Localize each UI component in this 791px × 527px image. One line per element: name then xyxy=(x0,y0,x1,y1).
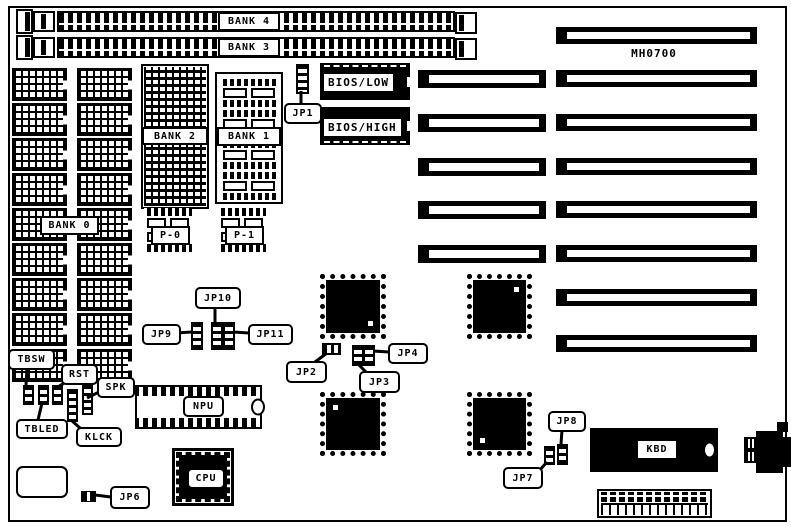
crystal-oscillator xyxy=(16,466,68,498)
kbd-label: KBD xyxy=(638,441,676,458)
jp3-jumper xyxy=(363,345,375,366)
p0-label: P-0 xyxy=(151,226,190,245)
bank1-text: BANK 1 xyxy=(228,131,270,142)
qfp-chip xyxy=(467,392,532,456)
bank0-label: BANK 0 xyxy=(40,216,99,235)
simm-latch xyxy=(16,9,33,34)
power-connector xyxy=(597,489,712,518)
isa-slot-short xyxy=(418,245,546,263)
simm-latch xyxy=(455,38,477,60)
isa-slot-short xyxy=(418,201,546,219)
rst-text: RST xyxy=(69,369,90,380)
qfp-chip xyxy=(320,392,386,456)
klck-label: KLCK xyxy=(76,427,122,447)
dram-chip xyxy=(77,103,132,136)
rst-header xyxy=(52,385,63,405)
simm-latch xyxy=(33,11,55,32)
jp7-text: JP7 xyxy=(512,473,533,484)
jp6-jumper xyxy=(81,491,96,502)
dram-chip xyxy=(12,243,67,276)
dram-chip xyxy=(77,68,132,101)
jp4-text: JP4 xyxy=(397,348,418,359)
isa-slot-short xyxy=(418,114,546,132)
jp11-label: JP11 xyxy=(248,324,293,345)
p1-label: P-1 xyxy=(225,226,264,245)
npu-text: NPU xyxy=(193,401,214,412)
jp9-text: JP9 xyxy=(151,329,172,340)
p1-text: P-1 xyxy=(234,230,255,241)
tbled-header xyxy=(38,385,49,405)
jp2-jumper xyxy=(322,343,341,355)
qfp-chip xyxy=(467,274,532,339)
dram-chip xyxy=(12,313,67,346)
board-part-number: MH0700 xyxy=(608,47,700,60)
keyboard-din-connector xyxy=(779,437,791,467)
isa-slot-short xyxy=(418,70,546,88)
tbsw-text: TBSW xyxy=(17,354,45,365)
motherboard-diagram: BANK 4 BANK 3 MH0700 BANK 0 BANK 2 BANK … xyxy=(0,0,791,527)
jp1-label: JP1 xyxy=(284,103,322,124)
jp3-label: JP3 xyxy=(359,371,400,393)
tbsw-label: TBSW xyxy=(8,349,55,370)
jp2-text: JP2 xyxy=(296,367,317,378)
dram-chip xyxy=(12,103,67,136)
jp2-label: JP2 xyxy=(286,361,327,383)
isa-slot-long xyxy=(556,114,757,131)
kbd-text: KBD xyxy=(646,444,667,455)
isa-slot-long xyxy=(556,245,757,262)
isa-slot-long xyxy=(556,289,757,306)
jp9-label: JP9 xyxy=(142,324,181,345)
spk-text: SPK xyxy=(105,382,126,393)
jp6-label: JP6 xyxy=(110,486,150,509)
bios-high-text: BIOS/HIGH xyxy=(324,119,401,136)
dram-chip xyxy=(77,278,132,311)
tbled-text: TBLED xyxy=(24,424,59,435)
simm-latch xyxy=(33,37,55,58)
dram-chip xyxy=(77,173,132,206)
qfp-chip xyxy=(320,274,386,339)
bios-low-chip: BIOS/LOW xyxy=(320,63,410,100)
jp10-jumper xyxy=(211,322,223,350)
jp4-label: JP4 xyxy=(388,343,428,364)
bank1-label: BANK 1 xyxy=(217,127,281,146)
din-pin-stub xyxy=(744,450,758,463)
din-pin-stub xyxy=(744,437,758,450)
spk-label: SPK xyxy=(97,377,135,398)
dram-chip xyxy=(77,138,132,171)
cpu-text: CPU xyxy=(195,473,216,484)
jp9-jumper xyxy=(191,322,203,350)
jp8-label: JP8 xyxy=(548,411,586,432)
dram-chip xyxy=(12,278,67,311)
isa-slot-long xyxy=(556,335,757,352)
dram-chip xyxy=(77,313,132,346)
dip-socket xyxy=(220,79,278,107)
dip-socket xyxy=(220,172,278,200)
isa-slot-long xyxy=(556,27,757,44)
jp1-jumper xyxy=(296,64,309,94)
jp3-text: JP3 xyxy=(369,377,390,388)
jp6-text: JP6 xyxy=(119,492,140,503)
bank2-label: BANK 2 xyxy=(142,127,208,145)
bank4-text: BANK 4 xyxy=(228,16,270,27)
bank3-label: BANK 3 xyxy=(218,38,280,57)
tbsw-header xyxy=(23,385,34,405)
jp8-jumper xyxy=(557,444,568,465)
dram-chip xyxy=(12,138,67,171)
isa-slot-long xyxy=(556,158,757,175)
spk-header xyxy=(82,384,93,415)
rst-label: RST xyxy=(61,364,98,385)
dram-chip xyxy=(77,243,132,276)
jp1-text: JP1 xyxy=(292,108,313,119)
jp10-text: JP10 xyxy=(204,293,232,304)
klck-text: KLCK xyxy=(85,432,113,443)
jp7-label: JP7 xyxy=(503,467,543,489)
bios-low-text: BIOS/LOW xyxy=(324,74,393,91)
jp10-label: JP10 xyxy=(195,287,241,309)
dram-chip xyxy=(12,68,67,101)
dram-chip xyxy=(12,173,67,206)
klck-header xyxy=(67,389,78,422)
bank3-text: BANK 3 xyxy=(228,42,270,53)
bios-high-chip: BIOS/HIGH xyxy=(320,107,410,145)
bank0-text: BANK 0 xyxy=(48,220,90,231)
simm-latch xyxy=(455,12,477,34)
jp7-jumper xyxy=(544,446,555,465)
p0-text: P-0 xyxy=(160,230,181,241)
isa-slot-long xyxy=(556,201,757,218)
bank2-text: BANK 2 xyxy=(154,131,196,142)
isa-slot-long xyxy=(556,70,757,87)
jp11-text: JP11 xyxy=(256,329,284,340)
keyboard-din-connector xyxy=(777,422,788,432)
npu-label: NPU xyxy=(183,396,224,417)
isa-slot-short xyxy=(418,158,546,176)
simm-latch xyxy=(16,35,33,60)
bank4-label: BANK 4 xyxy=(218,12,280,31)
jp8-text: JP8 xyxy=(556,416,577,427)
tbled-label: TBLED xyxy=(16,419,68,439)
cpu-label: CPU xyxy=(187,468,225,489)
jp11-jumper xyxy=(223,322,235,350)
